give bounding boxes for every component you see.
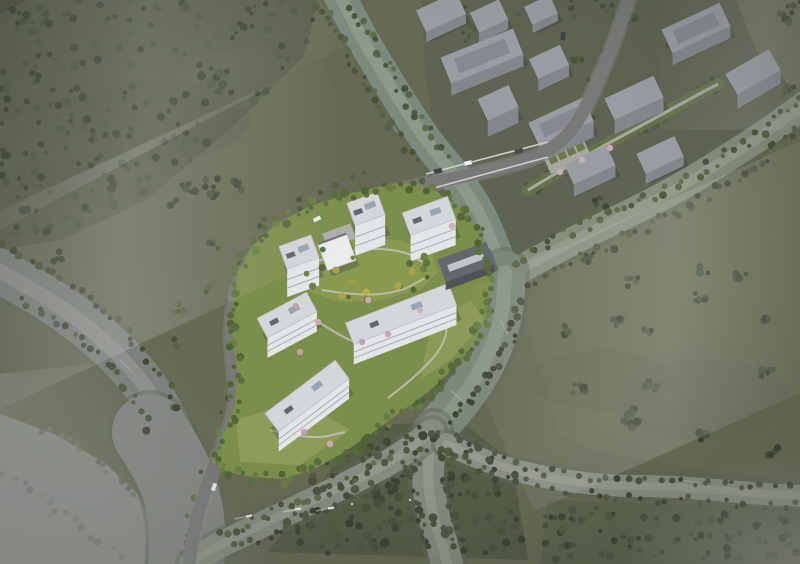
tree (441, 525, 447, 531)
tree (372, 97, 379, 104)
tree (706, 498, 711, 503)
tree (450, 537, 454, 541)
tree (511, 471, 519, 479)
tree (345, 54, 350, 59)
tree (51, 315, 56, 320)
tree (388, 505, 393, 510)
tree (106, 16, 111, 21)
tree (137, 46, 144, 53)
tree (662, 183, 668, 189)
tree (201, 98, 209, 106)
tree (489, 276, 496, 283)
tree (639, 192, 646, 199)
tree (237, 356, 243, 362)
tree (91, 451, 96, 456)
tree (438, 144, 445, 151)
tree (570, 390, 575, 395)
tree (53, 321, 60, 328)
tree (303, 511, 308, 516)
tree (541, 472, 547, 478)
tree (346, 295, 351, 300)
tree (310, 17, 315, 22)
tree (647, 383, 653, 389)
tree (58, 256, 65, 263)
tree (679, 179, 684, 184)
tree (391, 66, 396, 71)
tree (513, 333, 518, 338)
tree (296, 197, 302, 203)
tree (559, 526, 567, 534)
tree (76, 446, 82, 452)
tree (220, 439, 225, 444)
tree (446, 462, 451, 467)
tree (461, 31, 465, 35)
tree (679, 497, 683, 501)
tree (705, 478, 711, 484)
tree (471, 33, 477, 39)
tree (377, 526, 382, 531)
tree (181, 3, 190, 12)
tree (251, 238, 256, 243)
tree (124, 59, 130, 65)
tree (637, 197, 642, 202)
tree (216, 461, 220, 465)
tree (324, 202, 329, 207)
tree (81, 343, 86, 348)
tree (181, 137, 187, 143)
tree (344, 476, 349, 481)
tree (3, 152, 11, 160)
tree (27, 27, 35, 35)
tree (15, 230, 20, 235)
tree (328, 193, 335, 200)
tree (662, 213, 667, 218)
tree (60, 14, 66, 20)
tree (790, 2, 797, 9)
tree (72, 193, 79, 200)
tree (724, 553, 730, 559)
tree (173, 197, 179, 203)
tree (231, 264, 238, 271)
tree (403, 441, 408, 446)
tree (261, 225, 267, 231)
tree (467, 442, 472, 447)
tree (149, 145, 156, 152)
tree (706, 532, 713, 539)
tree (123, 91, 128, 96)
tree (301, 500, 307, 506)
tree (93, 303, 99, 309)
tree (511, 306, 519, 314)
cherry-tree (579, 157, 585, 163)
tree (35, 262, 43, 270)
tree (47, 426, 53, 432)
tree (101, 171, 106, 176)
tree (107, 193, 114, 200)
cherry-tree (607, 145, 613, 151)
cherry-tree (301, 429, 307, 435)
tree (416, 518, 421, 523)
tree (19, 206, 28, 215)
yellow-tree (362, 288, 369, 295)
tree (421, 253, 428, 260)
tree (305, 210, 309, 214)
tree (173, 404, 180, 411)
tree (152, 368, 156, 372)
tree (672, 514, 680, 522)
tree (70, 62, 79, 71)
tree (15, 21, 20, 26)
tree (480, 227, 484, 231)
tree (550, 234, 555, 239)
tree (791, 125, 797, 131)
tree (791, 84, 796, 89)
tree (88, 137, 95, 144)
tree (283, 525, 288, 530)
tree (420, 114, 425, 119)
tree (589, 488, 594, 493)
tree (22, 11, 31, 20)
tree (410, 287, 416, 293)
tree (482, 256, 488, 262)
tree (637, 548, 643, 554)
tree (606, 552, 614, 560)
tree (261, 514, 267, 520)
tree (121, 152, 129, 160)
tree (102, 132, 109, 139)
tree (311, 3, 320, 12)
tree (508, 510, 513, 515)
tree (757, 522, 762, 527)
tree (464, 215, 471, 222)
tree (308, 464, 315, 471)
tree (512, 524, 519, 531)
tree (734, 505, 738, 509)
tree (81, 124, 87, 130)
tree (407, 515, 416, 524)
tree (597, 478, 602, 483)
tree (477, 333, 483, 339)
tree (183, 52, 187, 56)
tree (314, 458, 321, 465)
tree (188, 190, 192, 194)
tree (605, 512, 613, 520)
tree (145, 415, 152, 422)
tree (483, 530, 490, 537)
tree (374, 431, 378, 435)
tree (308, 197, 316, 205)
tree (104, 20, 109, 25)
tree (96, 1, 103, 8)
tree (486, 270, 492, 276)
tree (351, 255, 356, 260)
tree (462, 453, 469, 460)
tree (440, 190, 447, 197)
tree (575, 56, 581, 62)
tree (127, 18, 133, 24)
tree (448, 493, 454, 499)
tree (362, 503, 371, 512)
tree (428, 134, 435, 141)
tree (584, 253, 589, 258)
tree (151, 41, 157, 47)
tree (422, 125, 429, 132)
tree (558, 513, 565, 520)
tree (766, 121, 771, 126)
tree (415, 400, 420, 405)
tree (62, 322, 69, 329)
tree (389, 449, 394, 454)
tree (35, 3, 43, 11)
tree (626, 492, 632, 498)
tree (417, 461, 422, 466)
tree (365, 29, 371, 35)
tree (382, 520, 387, 525)
tree (411, 113, 418, 120)
tree (252, 4, 256, 8)
tree (454, 525, 459, 530)
tree (558, 544, 565, 551)
tree (214, 175, 221, 182)
tree (49, 268, 56, 275)
tree (231, 289, 240, 298)
tree (460, 205, 469, 214)
tree (712, 182, 719, 189)
tree (309, 480, 315, 486)
tree (325, 15, 330, 20)
tree (403, 465, 408, 470)
tree (294, 498, 301, 505)
tree (61, 135, 66, 140)
tree (702, 298, 706, 302)
tree (345, 538, 349, 542)
tree (707, 516, 714, 523)
tree (463, 355, 470, 362)
tree (470, 391, 476, 397)
tree (33, 420, 38, 425)
tree (290, 7, 297, 14)
tree (604, 249, 608, 253)
tree (593, 244, 600, 251)
tree (18, 182, 25, 189)
tree (609, 3, 614, 8)
tree (197, 71, 206, 80)
tree (563, 542, 571, 550)
tree (253, 472, 259, 478)
tree (706, 551, 711, 556)
tree (236, 409, 241, 414)
tree (205, 41, 211, 47)
tree (600, 3, 606, 9)
tree (10, 230, 16, 236)
tree (56, 275, 62, 281)
tree (629, 203, 635, 209)
tree (368, 480, 375, 487)
tree (659, 477, 665, 483)
tree (70, 44, 78, 52)
tree (741, 170, 748, 177)
tree (35, 38, 43, 46)
tree (228, 329, 234, 335)
tree (645, 329, 650, 334)
tree (233, 272, 237, 276)
tree (422, 523, 426, 527)
tree (279, 471, 286, 478)
tree (346, 47, 351, 52)
tree (428, 126, 433, 131)
tree (406, 260, 413, 267)
tree (328, 10, 334, 16)
tree (23, 194, 29, 200)
tree (325, 550, 331, 556)
tree (391, 478, 396, 483)
tree (492, 484, 500, 492)
tree (723, 544, 731, 552)
tree (475, 247, 484, 256)
tree (133, 394, 137, 398)
tree (773, 483, 778, 488)
tree (677, 537, 681, 541)
tree (374, 485, 381, 492)
tree (465, 490, 471, 496)
tree (22, 61, 28, 67)
tree (116, 46, 123, 53)
tree (752, 129, 758, 135)
tree (567, 492, 571, 496)
tree (255, 91, 261, 97)
tree (50, 87, 55, 92)
tree (35, 79, 40, 84)
yellow-tree (338, 292, 345, 299)
tree (134, 161, 140, 167)
tree (230, 35, 235, 40)
tree (100, 308, 106, 314)
tree (310, 472, 317, 479)
tree (439, 369, 445, 375)
tree (500, 519, 507, 526)
tree (66, 436, 73, 443)
tree (635, 477, 642, 484)
tree (375, 446, 379, 450)
tree (457, 213, 465, 221)
tree (68, 113, 73, 118)
tree (79, 287, 86, 294)
tree (278, 501, 284, 507)
tree (241, 528, 246, 533)
tree (471, 518, 478, 525)
tree (371, 544, 378, 551)
cherry-tree (365, 297, 371, 303)
tree (33, 64, 37, 68)
tree (452, 204, 457, 209)
tree (216, 88, 223, 95)
tree (356, 22, 361, 27)
tree (474, 385, 482, 393)
tree (30, 20, 35, 25)
tree (613, 497, 618, 502)
tree (453, 411, 459, 417)
tree (318, 190, 323, 195)
boat-speck (351, 503, 353, 505)
tree (232, 283, 238, 289)
tree (284, 209, 290, 215)
tree (642, 476, 647, 481)
tree (126, 29, 135, 38)
tree (790, 134, 796, 140)
channel-west-wide-water (150, 432, 187, 564)
tree (413, 459, 417, 463)
tree (128, 336, 133, 341)
tree (381, 538, 390, 547)
tree (218, 80, 227, 89)
tree (233, 528, 241, 536)
tree (419, 178, 426, 185)
tree (243, 264, 248, 269)
tree (209, 66, 214, 71)
tree (241, 471, 245, 475)
tree (216, 529, 223, 536)
tree (152, 154, 160, 162)
tree (34, 208, 39, 213)
tree (251, 96, 260, 105)
tree (141, 6, 146, 11)
tree (642, 518, 646, 522)
tree (63, 510, 69, 516)
tree (388, 61, 392, 65)
tree (597, 216, 604, 223)
tree (13, 224, 19, 230)
tree (47, 189, 53, 195)
tree (90, 188, 95, 193)
tree (652, 387, 657, 392)
tree (103, 122, 111, 130)
tree (175, 302, 179, 306)
tree (171, 158, 178, 165)
tree (652, 197, 658, 203)
tree (645, 228, 652, 235)
tree (417, 502, 422, 507)
tree (652, 554, 656, 558)
tree (491, 476, 498, 483)
tree (483, 298, 490, 305)
tree (69, 15, 77, 23)
tree (578, 251, 583, 256)
tree (783, 526, 789, 532)
tree (412, 450, 418, 456)
tree (77, 524, 84, 531)
tree (139, 188, 148, 197)
tree (724, 498, 728, 502)
tree (127, 327, 133, 333)
tree (34, 105, 40, 111)
tree (145, 175, 152, 182)
tree (535, 468, 539, 472)
tree (247, 537, 253, 543)
tree (695, 193, 701, 199)
tree (598, 529, 602, 533)
tree (337, 518, 342, 523)
tree (295, 529, 301, 535)
tree (6, 405, 12, 411)
tree (215, 69, 223, 77)
tree (225, 471, 232, 478)
tree (231, 307, 236, 312)
tree (693, 291, 698, 296)
tree (764, 540, 768, 544)
tree (196, 62, 203, 69)
tree (216, 246, 221, 251)
tree (183, 130, 190, 137)
